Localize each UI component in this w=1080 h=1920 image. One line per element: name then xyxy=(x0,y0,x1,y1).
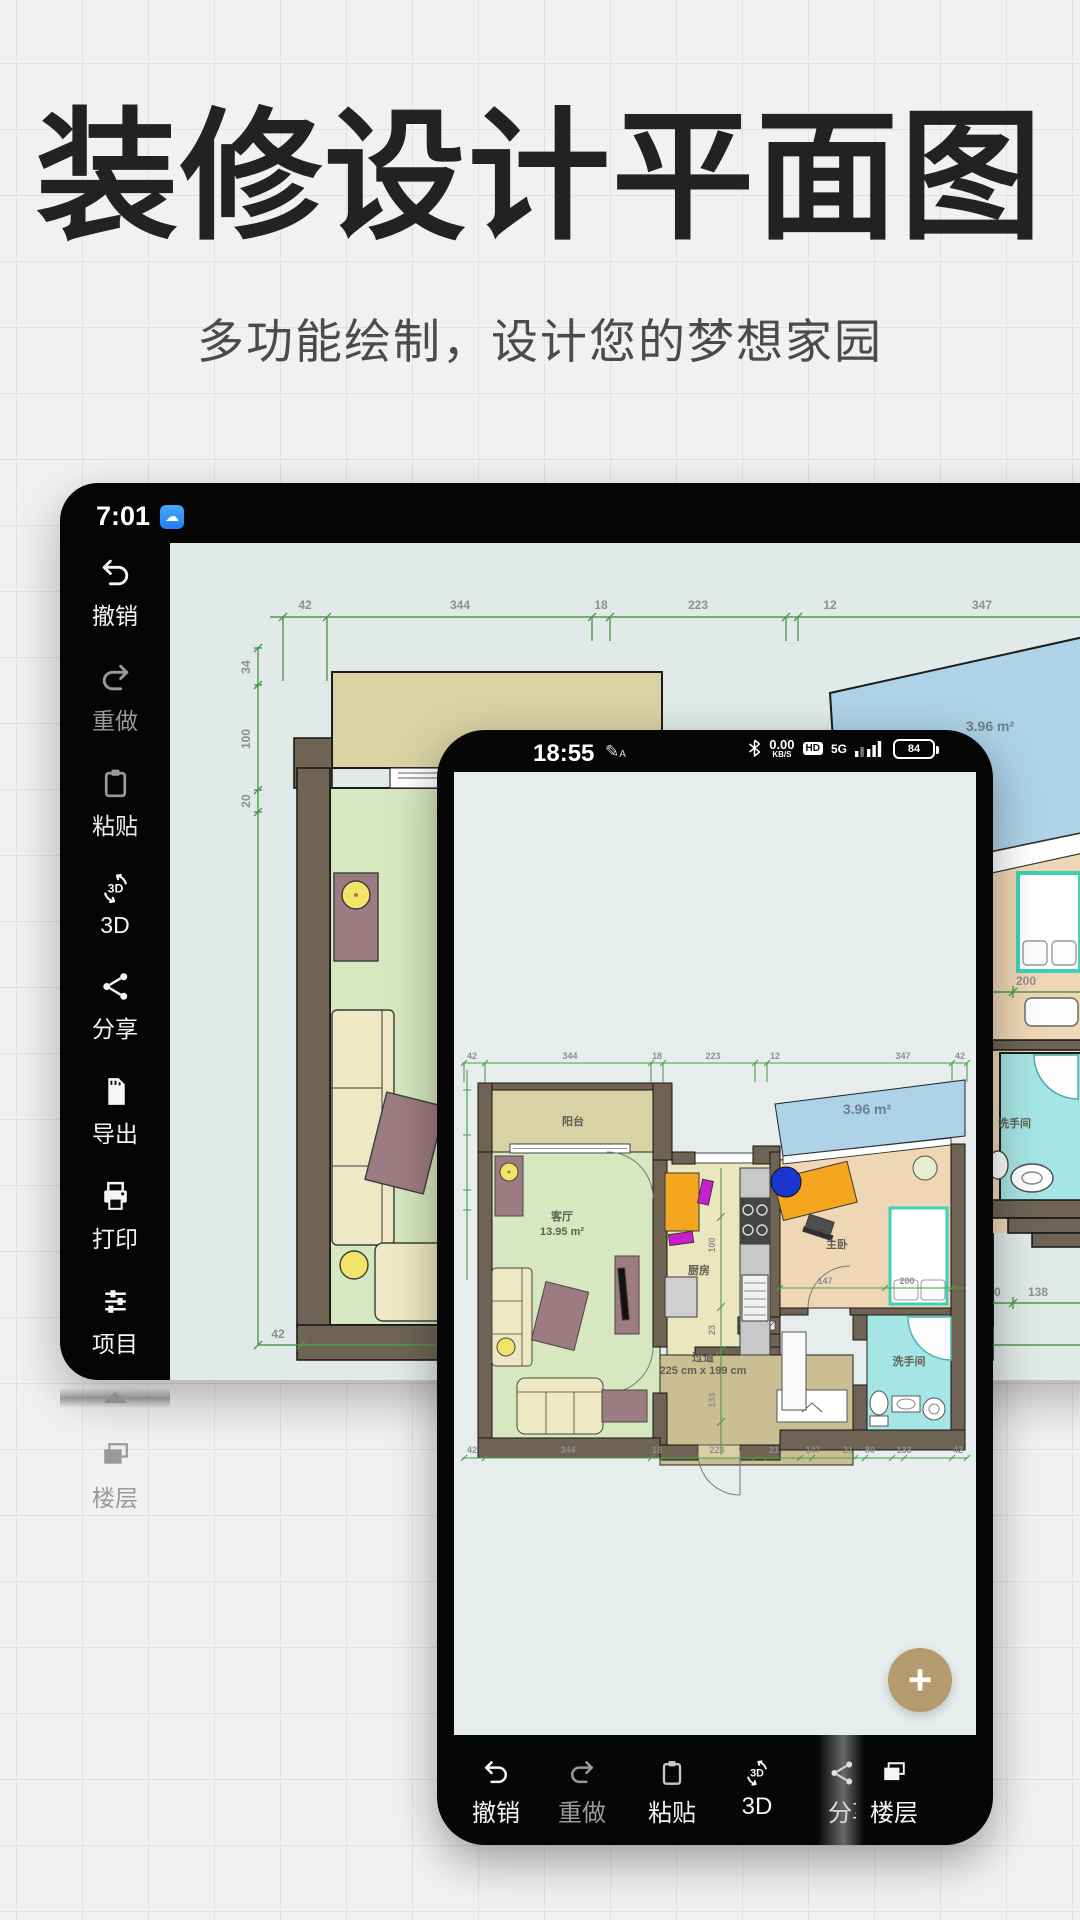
hall-size-label: 225 cm x 199 cm xyxy=(660,1365,747,1377)
3d-rotate-icon: 3D xyxy=(97,870,134,907)
t-dim: 138 xyxy=(1028,1285,1048,1299)
t-wall xyxy=(1032,1233,1080,1247)
tablet-tool-share[interactable]: 分享 xyxy=(92,968,138,1044)
lamp xyxy=(497,1338,515,1356)
phone-tool-paste[interactable]: 粘贴 xyxy=(640,1757,704,1828)
svg-text:42: 42 xyxy=(953,1445,963,1455)
share-icon xyxy=(97,968,134,1005)
round-table xyxy=(913,1156,937,1180)
sofa xyxy=(517,1378,603,1434)
t-bath-label: 洗手间 xyxy=(998,1116,1031,1130)
t-lamp xyxy=(340,1251,368,1279)
t-dim: 223 xyxy=(688,598,708,612)
sd-card-icon xyxy=(97,1073,134,1110)
phone-clock: 18:55 xyxy=(533,740,594,768)
svg-text:344: 344 xyxy=(560,1445,575,1455)
layers-icon xyxy=(878,1757,910,1789)
phone-tool-undo[interactable]: 撤销 xyxy=(464,1757,528,1828)
stove xyxy=(740,1198,770,1244)
t-bench xyxy=(1025,998,1078,1026)
svg-text:21: 21 xyxy=(769,1445,779,1455)
kitchen-counter xyxy=(740,1168,770,1355)
svg-text:3D: 3D xyxy=(750,1768,764,1780)
svg-text:42: 42 xyxy=(955,1051,965,1061)
tablet-tool-print[interactable]: 打印 xyxy=(92,1178,138,1254)
svg-text:42: 42 xyxy=(467,1051,477,1061)
sliders-icon xyxy=(97,1283,134,1320)
paste-icon xyxy=(97,765,134,802)
network-type: 5G xyxy=(831,742,847,756)
svg-text:18: 18 xyxy=(652,1051,662,1061)
battery-indicator: 84 xyxy=(893,739,935,759)
t-sink xyxy=(1011,1164,1053,1192)
hall-label: 过道 xyxy=(692,1350,714,1364)
phone-tool-3d[interactable]: 3D 3D xyxy=(725,1757,789,1821)
svg-text:133: 133 xyxy=(896,1445,911,1455)
svg-text:23: 23 xyxy=(707,1325,717,1335)
t-wall xyxy=(988,1200,1080,1218)
tablet-tool-project[interactable]: 项目 xyxy=(92,1283,138,1359)
phone-canvas[interactable]: 42 344 18 223 12 347 42 42 344 18 223 21… xyxy=(454,772,976,1735)
tablet-tool-undo[interactable]: 撤销 xyxy=(92,555,138,631)
tablet-tool-3d[interactable]: 3D 3D xyxy=(97,870,134,939)
t-dim: 347 xyxy=(972,598,992,612)
undo-icon xyxy=(97,555,134,592)
drying-rack xyxy=(742,1275,768,1321)
promo-page: 装修设计平面图 多功能绘制，设计您的梦想家园 7:01 ☁ 撤销 重做 粘贴 3… xyxy=(0,0,1080,1920)
tablet-status-bar: 7:01 ☁ xyxy=(96,501,184,532)
toolbar-fade-overlay xyxy=(818,1735,864,1845)
svg-text:347: 347 xyxy=(895,1051,910,1061)
svg-text:223: 223 xyxy=(709,1445,724,1455)
bluetooth-icon xyxy=(748,739,761,758)
blue-area-label: 3.96 m² xyxy=(843,1101,892,1117)
svg-text:18: 18 xyxy=(652,1445,662,1455)
redo-icon xyxy=(566,1757,598,1789)
living-area-label: 13.95 m² xyxy=(540,1226,584,1238)
add-button[interactable]: + xyxy=(888,1648,952,1712)
t-dim: 34 xyxy=(239,660,253,674)
phone-status-bar: 18:55 ✎A 0.00 KB/S HD 5G 84 xyxy=(437,730,993,772)
phone-toolbar: 撤销 重做 粘贴 3D 3D 分享 楼层 xyxy=(454,1735,976,1845)
kitchen-unit xyxy=(665,1277,697,1317)
toolbar-scroll-hint xyxy=(60,1388,170,1408)
tablet-tool-floors[interactable]: 楼层 xyxy=(92,1437,138,1513)
undo-icon xyxy=(480,1757,512,1789)
pencil-input-icon: ✎A xyxy=(605,742,626,762)
desk-chair xyxy=(771,1167,801,1197)
paste-icon xyxy=(656,1757,688,1789)
svg-text:147: 147 xyxy=(805,1445,820,1455)
svg-text:344: 344 xyxy=(562,1051,577,1061)
t-wall xyxy=(297,768,330,1328)
hd-badge: HD xyxy=(803,742,823,755)
3d-rotate-icon: 3D xyxy=(741,1757,773,1789)
t-dim: 42 xyxy=(271,1327,285,1341)
t-dim: 200 xyxy=(1016,974,1036,988)
svg-text:100: 100 xyxy=(707,1237,717,1252)
svg-text:12: 12 xyxy=(770,1051,780,1061)
svg-text:42: 42 xyxy=(467,1445,477,1455)
svg-text:80: 80 xyxy=(865,1445,875,1455)
tablet-tool-redo[interactable]: 重做 xyxy=(92,660,138,736)
t-dim: 18 xyxy=(594,598,608,612)
basin xyxy=(923,1398,945,1420)
t-dim: 344 xyxy=(450,598,470,612)
t-wall xyxy=(990,1040,1080,1050)
door-leaf xyxy=(782,1332,806,1410)
tablet-tool-export[interactable]: 导出 xyxy=(92,1073,138,1149)
signal-bars-icon xyxy=(855,740,885,758)
layers-icon xyxy=(97,1437,134,1474)
svg-text:133: 133 xyxy=(707,1392,717,1407)
network-speed: 0.00 KB/S xyxy=(769,738,794,759)
toilet xyxy=(870,1391,888,1415)
svg-text:3D: 3D xyxy=(107,882,123,896)
bath-label: 洗手间 xyxy=(893,1354,926,1368)
kitchen-table xyxy=(665,1173,699,1231)
svg-text:147: 147 xyxy=(817,1276,832,1286)
cloud-icon: ☁ xyxy=(160,505,184,529)
page-title: 装修设计平面图 xyxy=(0,96,1080,259)
t-dim: 20 xyxy=(239,794,253,808)
phone-mockup: 18:55 ✎A 0.00 KB/S HD 5G 84 xyxy=(437,730,993,1845)
sink xyxy=(892,1396,920,1412)
kitchen-label: 厨房 xyxy=(688,1263,710,1277)
printer-icon xyxy=(97,1178,134,1215)
svg-text:21: 21 xyxy=(843,1445,853,1455)
living-label: 客厅 xyxy=(550,1209,573,1223)
page-subtitle: 多功能绘制，设计您的梦想家园 xyxy=(0,303,1080,372)
phone-tool-redo[interactable]: 重做 xyxy=(550,1757,614,1828)
tablet-tool-paste[interactable]: 粘贴 xyxy=(92,765,138,841)
phone-floorplan: 42 344 18 223 12 347 42 42 344 18 223 21… xyxy=(455,1040,977,1500)
svg-text:200: 200 xyxy=(899,1276,914,1286)
redo-icon xyxy=(97,660,134,697)
tablet-toolbar: 撤销 重做 粘贴 3D 3D 分享 导出 xyxy=(60,555,170,1513)
bedroom-label: 主卧 xyxy=(826,1237,848,1251)
t-wall xyxy=(1008,1218,1080,1233)
svg-text:223: 223 xyxy=(705,1051,720,1061)
phone-tool-floors[interactable]: 楼层 xyxy=(862,1757,926,1828)
t-dim: 0 xyxy=(994,1285,1001,1299)
tablet-clock: 7:01 xyxy=(96,501,150,532)
side-table xyxy=(602,1390,647,1422)
t-dim: 12 xyxy=(823,598,837,612)
t-dim: 100 xyxy=(239,729,253,749)
balcony-label: 阳台 xyxy=(562,1114,584,1128)
window xyxy=(695,1153,753,1163)
t-dim: 42 xyxy=(298,598,312,612)
